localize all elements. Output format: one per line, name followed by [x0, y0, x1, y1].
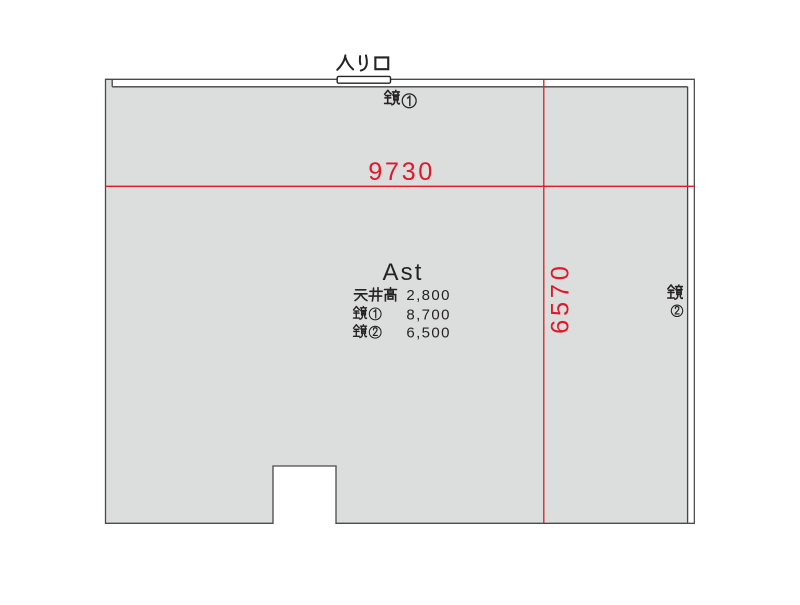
- svg-text:6570: 6570: [547, 262, 575, 333]
- svg-text:2,800: 2,800: [406, 287, 451, 304]
- svg-text:6,500: 6,500: [406, 325, 451, 342]
- svg-text:9730: 9730: [368, 158, 435, 186]
- svg-text:Ast: Ast: [383, 259, 424, 286]
- svg-text:8,700: 8,700: [406, 306, 451, 323]
